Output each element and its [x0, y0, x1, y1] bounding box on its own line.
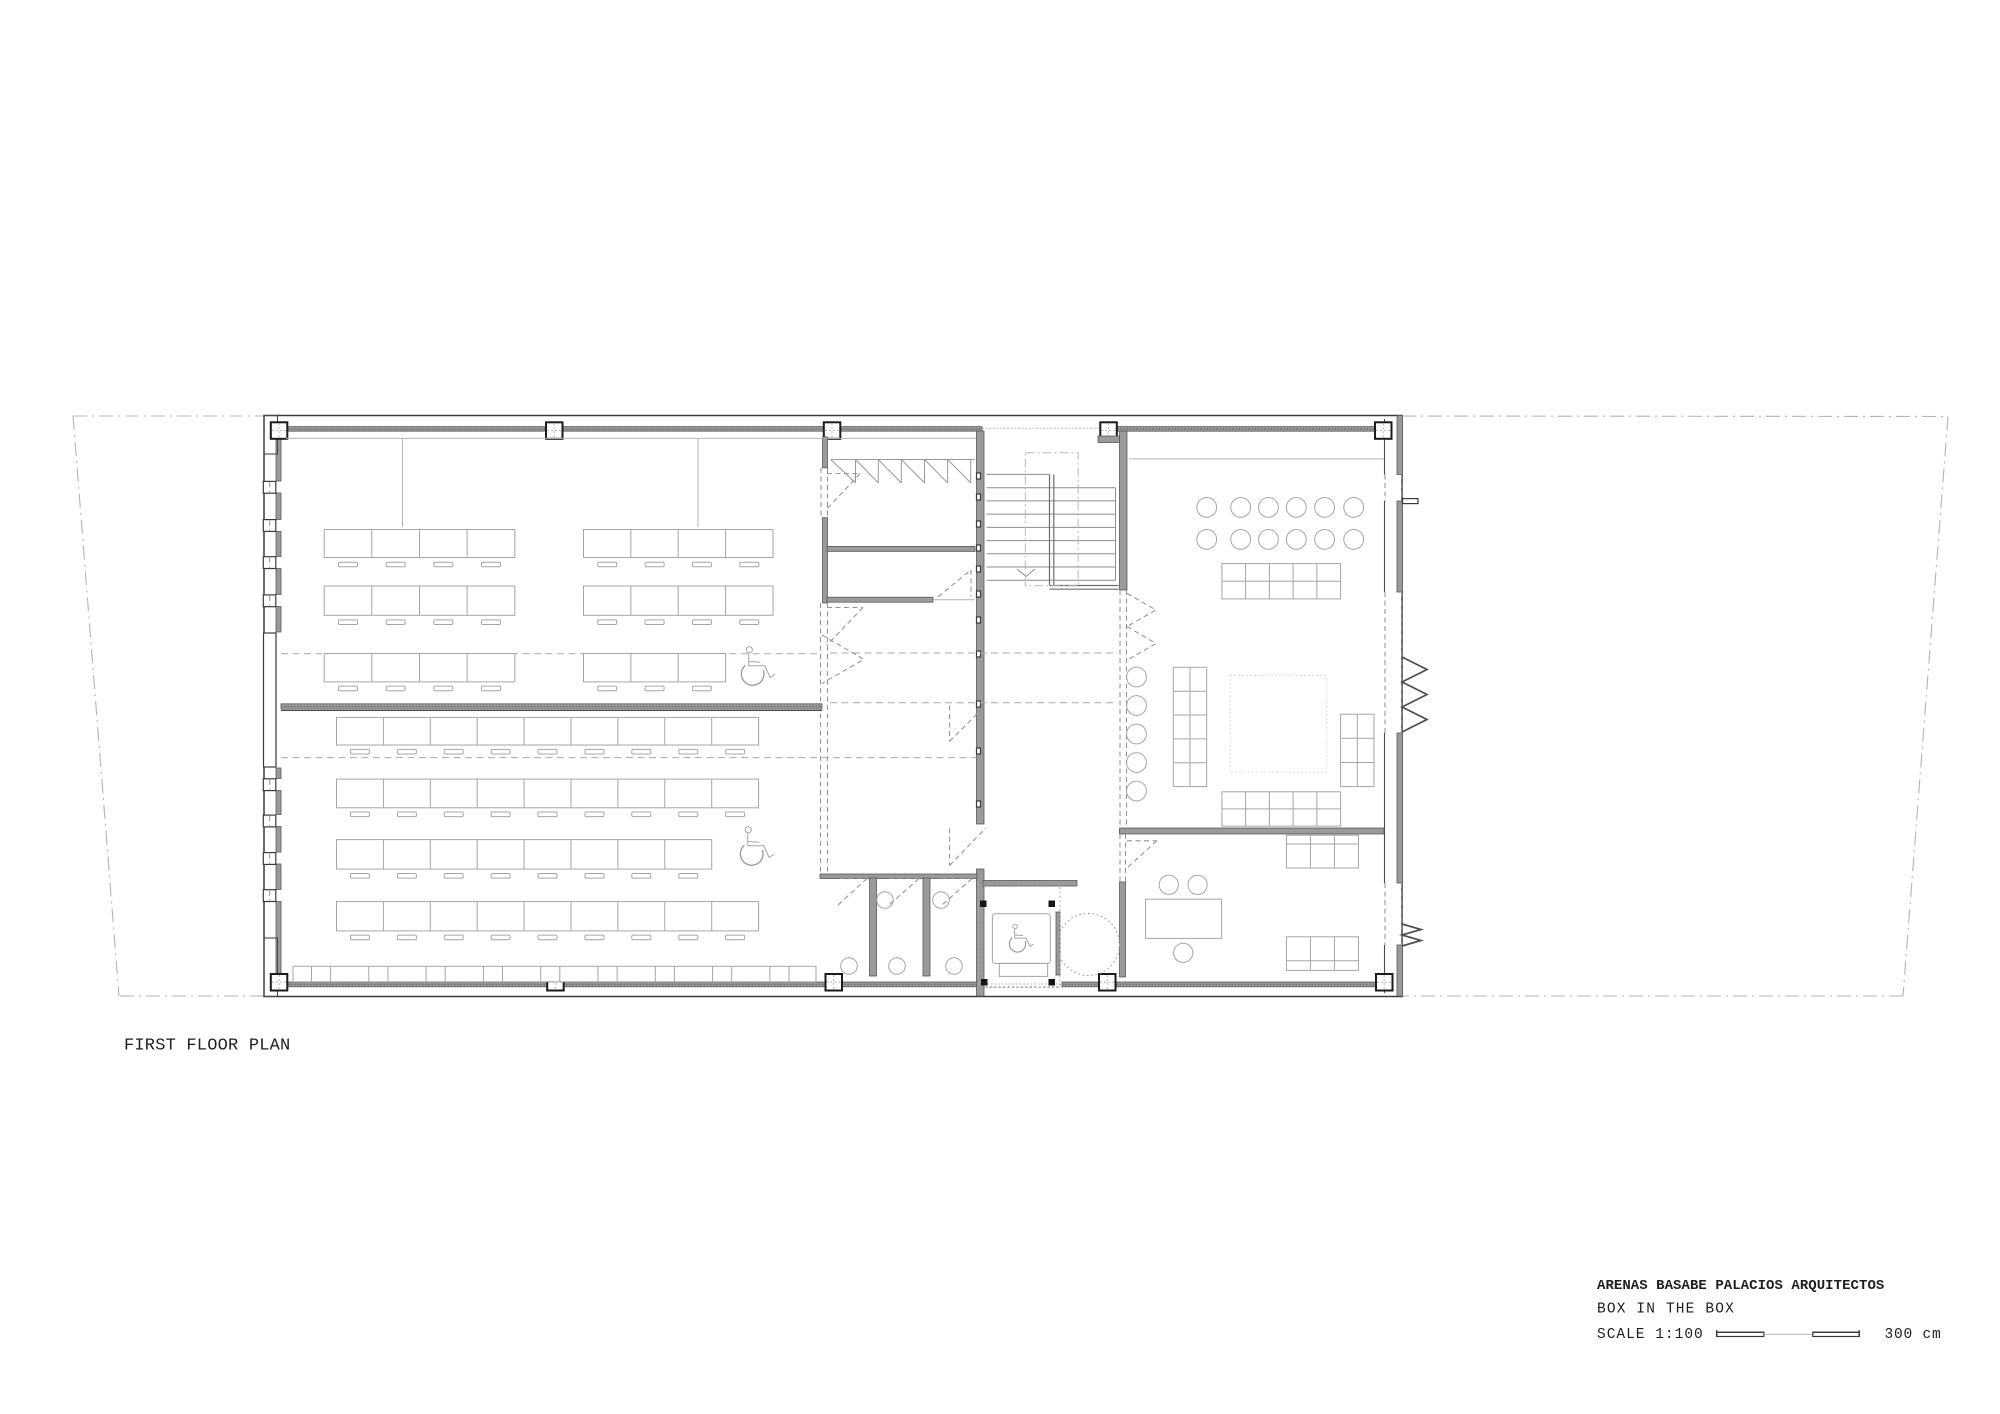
svg-text:ARENAS BASABE PALACIOS ARQUITE: ARENAS BASABE PALACIOS ARQUITECTOS — [1597, 1278, 1884, 1294]
svg-text:FIRST FLOOR PLAN: FIRST FLOOR PLAN — [124, 1037, 290, 1056]
svg-text:SCALE 1:100: SCALE 1:100 — [1597, 1327, 1704, 1343]
svg-text:300 cm: 300 cm — [1885, 1327, 1942, 1343]
svg-text:BOX IN THE BOX: BOX IN THE BOX — [1597, 1302, 1735, 1318]
